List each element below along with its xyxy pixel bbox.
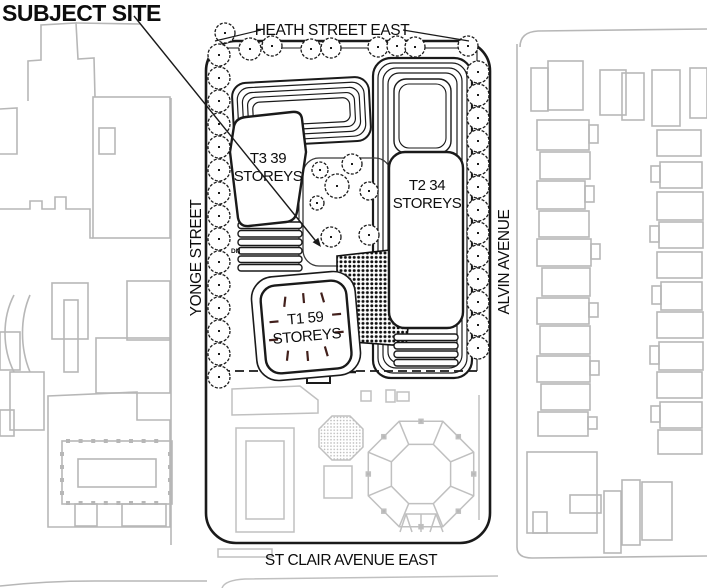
column-tick xyxy=(60,452,64,456)
tree-center-dot xyxy=(477,232,479,234)
street-label-alvin: ALVIN AVENUE xyxy=(496,209,513,314)
building-footprint xyxy=(75,504,97,526)
tree-center-dot xyxy=(467,45,469,47)
fountain-octagon xyxy=(319,416,363,460)
house-extension xyxy=(589,125,598,143)
house-footprint xyxy=(540,152,590,179)
building-footprint xyxy=(99,128,115,154)
column-tick xyxy=(154,439,158,443)
st-clair-curb-curve xyxy=(222,576,498,588)
house-row-east xyxy=(650,130,703,454)
building-footprint xyxy=(10,372,44,430)
building-footprint xyxy=(64,300,78,372)
house-row-west xyxy=(537,120,600,436)
house-footprint xyxy=(657,192,703,220)
street-label-yonge: YONGE STREET xyxy=(188,199,205,317)
existing-structure xyxy=(361,391,371,401)
heath-curb-curve xyxy=(520,29,707,47)
building-footprint xyxy=(0,108,17,154)
column-tick xyxy=(60,465,64,469)
building-footprint xyxy=(23,295,31,372)
column-tick xyxy=(104,439,108,443)
column-tick xyxy=(60,478,64,482)
tower-t1-label-line1: T1 59 xyxy=(286,308,324,328)
existing-structure xyxy=(386,390,395,402)
building-footprint xyxy=(533,512,547,533)
house-footprint xyxy=(658,430,702,454)
existing-building xyxy=(236,428,294,532)
house-footprint xyxy=(659,342,703,370)
tree-center-dot xyxy=(368,190,370,192)
building-footprint xyxy=(93,97,170,238)
building-footprint xyxy=(642,482,672,540)
house-footprint xyxy=(537,120,589,150)
tree-center-dot xyxy=(218,77,220,79)
tree-center-dot xyxy=(218,100,220,102)
existing-building xyxy=(246,441,284,519)
tree-center-dot xyxy=(414,46,416,48)
colonnade-ticks xyxy=(60,439,172,505)
house-footprint xyxy=(540,326,590,354)
house-footprint xyxy=(657,130,701,156)
tree-center-dot xyxy=(218,376,220,378)
house-footprint xyxy=(531,68,548,111)
tree-center-dot xyxy=(249,48,251,50)
st-clair-curb-line xyxy=(0,581,207,586)
house-footprint xyxy=(539,211,589,237)
street-label-heath: HEATH STREET EAST xyxy=(255,22,410,39)
tree-center-dot xyxy=(310,48,312,50)
building-footprint xyxy=(604,491,621,553)
house-footprint xyxy=(657,312,703,338)
sidewalk-line xyxy=(0,197,93,238)
tree-center-dot xyxy=(477,301,479,303)
street-label-st-clair: ST CLAIR AVENUE EAST xyxy=(265,552,438,569)
subject-site-title: SUBJECT SITE xyxy=(2,0,161,26)
plaza-outline xyxy=(232,386,318,415)
site-plan-drawing: T3 39 STOREYS DN T2 34 STOREYS T1 59 STO… xyxy=(0,0,707,588)
tree-center-dot xyxy=(477,278,479,280)
tree-center-dot xyxy=(477,71,479,73)
building-footprint xyxy=(622,480,640,545)
house-footprint xyxy=(537,356,590,382)
site-plan-canvas: T3 39 STOREYS DN T2 34 STOREYS T1 59 STO… xyxy=(0,0,707,588)
column-tick xyxy=(66,501,70,505)
house-footprint xyxy=(660,402,702,428)
tree-center-dot xyxy=(218,307,220,309)
tower-t3-label-line1: T3 39 xyxy=(250,150,286,167)
column-tick xyxy=(60,491,64,495)
house-extension xyxy=(589,303,598,317)
house-extension xyxy=(590,361,599,375)
building-footprint xyxy=(96,338,170,393)
house-footprint xyxy=(657,252,702,278)
house-footprint xyxy=(659,222,703,248)
stair-down-label: DN xyxy=(231,248,241,255)
tree-center-dot xyxy=(336,185,338,187)
tree-center-dot xyxy=(477,255,479,257)
existing-structure xyxy=(397,392,409,401)
house-footprint xyxy=(661,282,702,310)
house-extension xyxy=(651,406,660,422)
tree-center-dot xyxy=(218,123,220,125)
tree-center-dot xyxy=(368,234,370,236)
column-tick xyxy=(129,439,133,443)
tower-t2-label-line1: T2 34 xyxy=(409,177,445,194)
house-footprint xyxy=(537,181,585,209)
context-buildings-west xyxy=(0,23,207,586)
house-footprint xyxy=(548,61,583,110)
tree-center-dot xyxy=(218,261,220,263)
tree-center-dot xyxy=(218,169,220,171)
house-extension xyxy=(585,186,594,202)
column-tick xyxy=(116,439,120,443)
column-tick xyxy=(79,439,83,443)
column-tick xyxy=(66,439,70,443)
building-footprint xyxy=(28,23,95,101)
house-footprint xyxy=(542,268,590,296)
house-footprint xyxy=(537,239,591,266)
tree-center-dot xyxy=(218,215,220,217)
tree-center-dot xyxy=(351,163,353,165)
column-tick xyxy=(91,439,95,443)
house-footprint xyxy=(690,68,707,118)
building-footprint xyxy=(127,281,170,340)
tree-center-dot xyxy=(218,192,220,194)
tree-center-dot xyxy=(477,186,479,188)
column-tick xyxy=(142,439,146,443)
existing-structure xyxy=(400,514,443,532)
house-footprint xyxy=(538,412,588,436)
house-footprint xyxy=(652,70,680,126)
tree-center-dot xyxy=(477,209,479,211)
house-footprint xyxy=(657,372,702,398)
existing-structure xyxy=(324,466,352,498)
column-tick xyxy=(116,501,120,505)
house-extension xyxy=(652,286,661,304)
house-extension xyxy=(591,244,600,259)
tree-center-dot xyxy=(224,32,226,34)
house-extension xyxy=(588,417,597,429)
tree-center-dot xyxy=(319,169,321,171)
house-extension xyxy=(651,166,660,182)
tree-center-dot xyxy=(477,347,479,349)
house-extension xyxy=(650,226,659,242)
tree-center-dot xyxy=(218,54,220,56)
tree-center-dot xyxy=(477,94,479,96)
tower-t2-label-line2: STOREYS xyxy=(393,195,462,212)
column-tick xyxy=(104,501,108,505)
tree-center-dot xyxy=(218,330,220,332)
existing-octagonal-building xyxy=(366,419,475,528)
house-footprint xyxy=(660,162,702,188)
tree-center-dot xyxy=(271,45,273,47)
house-footprint xyxy=(537,298,589,324)
building-footprint xyxy=(0,410,14,436)
house-footprint xyxy=(541,384,590,410)
building-footprint xyxy=(52,283,88,339)
tree-center-dot xyxy=(218,353,220,355)
tree-center-dot xyxy=(218,284,220,286)
building-footprint xyxy=(122,504,166,526)
tree-center-dot xyxy=(330,236,332,238)
tree-center-dot xyxy=(377,46,379,48)
tree-center-dot xyxy=(477,117,479,119)
tree-center-dot xyxy=(330,47,332,49)
tower-t3: T3 39 STOREYS DN xyxy=(230,112,306,271)
tower-t3-floor-stack xyxy=(238,222,302,271)
tree-center-dot xyxy=(477,140,479,142)
courtyard-trees xyxy=(310,154,379,247)
tower-t1: T1 59 STOREYS xyxy=(250,270,363,383)
house-extension xyxy=(650,346,659,364)
tower-t2: T2 34 STOREYS xyxy=(389,152,463,366)
building-footprint xyxy=(5,295,14,372)
tree-center-dot xyxy=(477,163,479,165)
tree-center-dot xyxy=(477,324,479,326)
building-footprint xyxy=(527,452,597,533)
context-buildings-east xyxy=(517,29,707,558)
tree-center-dot xyxy=(218,146,220,148)
tree-center-dot xyxy=(316,202,318,204)
building-footprint xyxy=(78,459,156,487)
tower-t2-floor-stack xyxy=(394,334,458,366)
tree-center-dot xyxy=(218,238,220,240)
tree-center-dot xyxy=(396,45,398,47)
